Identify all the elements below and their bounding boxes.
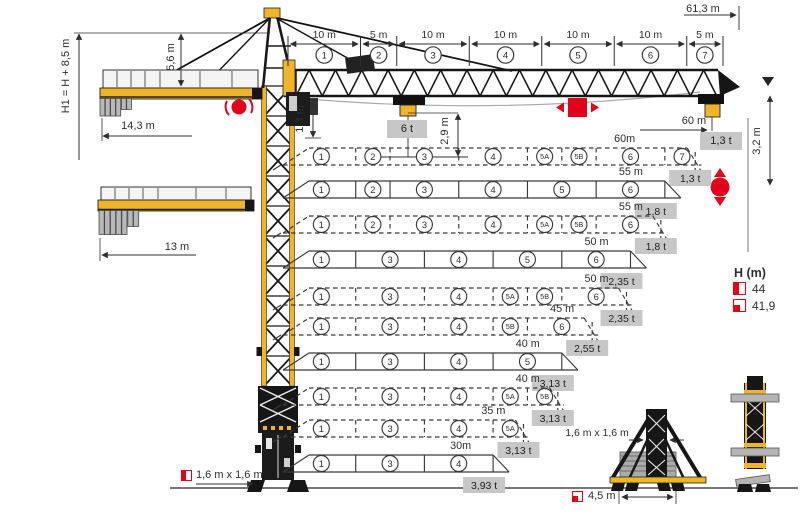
- mast: [264, 86, 292, 386]
- trolley-travel-icon: [556, 98, 599, 117]
- segment-number: 3: [422, 152, 427, 162]
- segment-number: 2: [370, 185, 375, 195]
- jib-segment-number: 4: [503, 51, 508, 62]
- segment-number: 6: [594, 255, 599, 265]
- row-tip-load-value: 1,3 t: [680, 173, 701, 185]
- cross-base-track-label: 4,5 m: [588, 490, 616, 502]
- config-row: 1345B645 m2,55 t: [273, 303, 608, 356]
- segment-number: 3: [422, 220, 427, 230]
- row-length-label: 45 m: [550, 303, 574, 315]
- segment-number: 3: [387, 459, 392, 469]
- mast-section-label: 1,6 m x 1,6 m: [196, 469, 263, 481]
- jib-segment-number: 1: [322, 51, 327, 62]
- config-row: 13430m3,93 t: [283, 440, 509, 493]
- jib-segment-length: 10 m: [313, 29, 337, 41]
- segment-number: 3: [387, 424, 392, 434]
- height-legend-title: H (m): [734, 266, 766, 280]
- jib-segment-length: 5 m: [370, 29, 388, 41]
- configuration-rows: 12345A5B6760m1,3 t12345655 m1,8 t12345A5…: [273, 133, 711, 493]
- jib-top-level-marker: [762, 77, 774, 86]
- cross-base-mast-label: 1,6 m x 1,6 m: [565, 427, 629, 439]
- jib-segment-length: 10 m: [421, 29, 445, 41]
- cross-base-icon: [572, 491, 583, 502]
- jib: [283, 54, 740, 106]
- row-length-label: 40 m: [516, 373, 540, 385]
- segment-number: 1: [319, 292, 324, 302]
- segment-number: 6: [594, 292, 599, 302]
- counterjib-short-radius-label: 13 m: [165, 241, 189, 253]
- jib-segment-number: 7: [702, 51, 707, 62]
- jib-foot: [283, 60, 295, 96]
- segment-number: 1: [319, 152, 324, 162]
- segment-number: 5B: [540, 292, 549, 301]
- height-on-cross-base-value: 41,9: [752, 299, 775, 313]
- segment-number: 6: [628, 185, 633, 195]
- segment-number: 3: [422, 185, 427, 195]
- segment-number: 4: [491, 220, 496, 230]
- segment-number: 7: [679, 152, 684, 162]
- segment-number: 4: [456, 255, 461, 265]
- segment-number: 3: [387, 357, 392, 367]
- row-tip-load-value: 3,13 t: [540, 413, 566, 425]
- segment-number: 5B: [575, 152, 584, 161]
- segment-number: 5A: [506, 424, 515, 433]
- segment-number: 1: [319, 255, 324, 265]
- segment-number: 5A: [506, 392, 515, 401]
- segment-number: 5A: [540, 152, 549, 161]
- segment-number: 1: [319, 392, 324, 402]
- counterjib-short-variant: [98, 187, 254, 235]
- total-height-label: H1 = H + 8,5 m: [60, 39, 72, 114]
- jib-segment-number: 3: [430, 51, 435, 62]
- jib-segment-length: 10 m: [639, 29, 663, 41]
- row-tip-load-value: 2,55 t: [574, 343, 600, 355]
- segment-number: 3: [387, 255, 392, 265]
- config-row: 12345A5B655 m1,8 t: [273, 201, 677, 254]
- segment-number: 4: [456, 322, 461, 332]
- row-length-label: 35 m: [481, 405, 505, 417]
- mast-anchor-icon: [181, 470, 192, 481]
- row-tip-load-value: 3,13 t: [505, 445, 531, 457]
- segment-number: 5B: [540, 392, 549, 401]
- segment-number: 3: [387, 322, 392, 332]
- segment-number: 5B: [575, 220, 584, 229]
- jib-tip-section: [718, 70, 740, 96]
- jib-segment-length: 5 m: [696, 29, 714, 41]
- jib-segment-number: 2: [376, 51, 381, 62]
- mast-foot: [247, 480, 265, 492]
- hook-clearance-label: 2,9 m: [439, 117, 451, 145]
- segment-number: 4: [456, 357, 461, 367]
- cross-base: [610, 409, 706, 491]
- row-tip-load-value: 2,35 t: [608, 276, 634, 288]
- row-length-label: 55 m: [619, 201, 643, 213]
- segment-number: 1: [319, 220, 324, 230]
- segment-number: 4: [491, 185, 496, 195]
- segment-number: 4: [456, 392, 461, 402]
- height-on-anchors-value: 44: [752, 282, 765, 296]
- segment-number: 5: [525, 255, 530, 265]
- segment-number: 1: [319, 424, 324, 434]
- counterjib-radius-label: 14,3 m: [121, 120, 155, 132]
- segment-number: 6: [559, 322, 564, 332]
- tip-radius-label: 60 m: [682, 115, 706, 127]
- telescoping-section: [731, 376, 779, 492]
- mast-anchor-icon: [733, 282, 746, 295]
- row-length-label: 30m: [450, 440, 471, 452]
- segment-number: 5A: [540, 220, 549, 229]
- mast-foot: [287, 480, 309, 492]
- segment-number: 5B: [506, 322, 515, 331]
- segment-number: 4: [456, 292, 461, 302]
- jib-tip-height-label: 3,2 m: [751, 127, 763, 155]
- config-row: 1345A35 m3,13 t: [273, 405, 539, 458]
- row-length-label: 50 m: [584, 273, 608, 285]
- segment-number: 1: [319, 357, 324, 367]
- segment-number: 2: [370, 152, 375, 162]
- row-length-label: 40 m: [516, 338, 540, 350]
- max-capacity-badge: 6 t: [387, 120, 427, 138]
- segment-number: 3: [387, 392, 392, 402]
- jib-segment-length: 10 m: [566, 29, 590, 41]
- segment-number: 1: [319, 322, 324, 332]
- jib-total-length-label: 61,3 m: [686, 3, 720, 15]
- row-tip-load-value: 1,8 t: [646, 241, 667, 253]
- segment-number: 5A: [506, 292, 515, 301]
- segment-number: 6: [628, 220, 633, 230]
- segment-number: 3: [387, 292, 392, 302]
- jib-segment-length: 10 m: [494, 29, 518, 41]
- slewing-icon: [226, 99, 253, 115]
- segment-number: 1: [319, 459, 324, 469]
- segment-number: 4: [491, 152, 496, 162]
- row-length-label: 55 m: [619, 166, 643, 178]
- cross-base-icon: [733, 299, 746, 312]
- tip-capacity-badge: 1,3 t: [700, 132, 742, 150]
- segment-number: 4: [456, 424, 461, 434]
- row-length-label: 60m: [614, 133, 635, 145]
- segment-number: 2: [370, 220, 375, 230]
- row-length-label: 50 m: [584, 236, 608, 248]
- jib-foot-height-label: 1,3 m: [294, 105, 306, 133]
- crane-artwork: 10 m15 m210 m310 m410 m510 m65 m7 12345A…: [0, 0, 800, 515]
- segment-number: 6: [628, 152, 633, 162]
- config-row: 12345A5B6760m1,3 t: [273, 133, 711, 186]
- apex-height-label: 5,6 m: [165, 43, 177, 71]
- jib-segment-number: 5: [575, 51, 580, 62]
- hook-hoist-icon: [711, 168, 730, 206]
- segment-number: 1: [319, 185, 324, 195]
- row-tip-load-value: 3,93 t: [471, 480, 497, 492]
- segment-number: 5: [559, 185, 564, 195]
- row-tip-load-value: 2,35 t: [608, 313, 634, 325]
- tower-crane-diagram: 10 m15 m210 m310 m410 m510 m65 m7 12345A…: [0, 0, 800, 515]
- jib-segment-number: 6: [648, 51, 653, 62]
- config-row: 1345A5B40 m3,13 t: [273, 373, 574, 426]
- segment-number: 5: [525, 357, 530, 367]
- segment-number: 4: [456, 459, 461, 469]
